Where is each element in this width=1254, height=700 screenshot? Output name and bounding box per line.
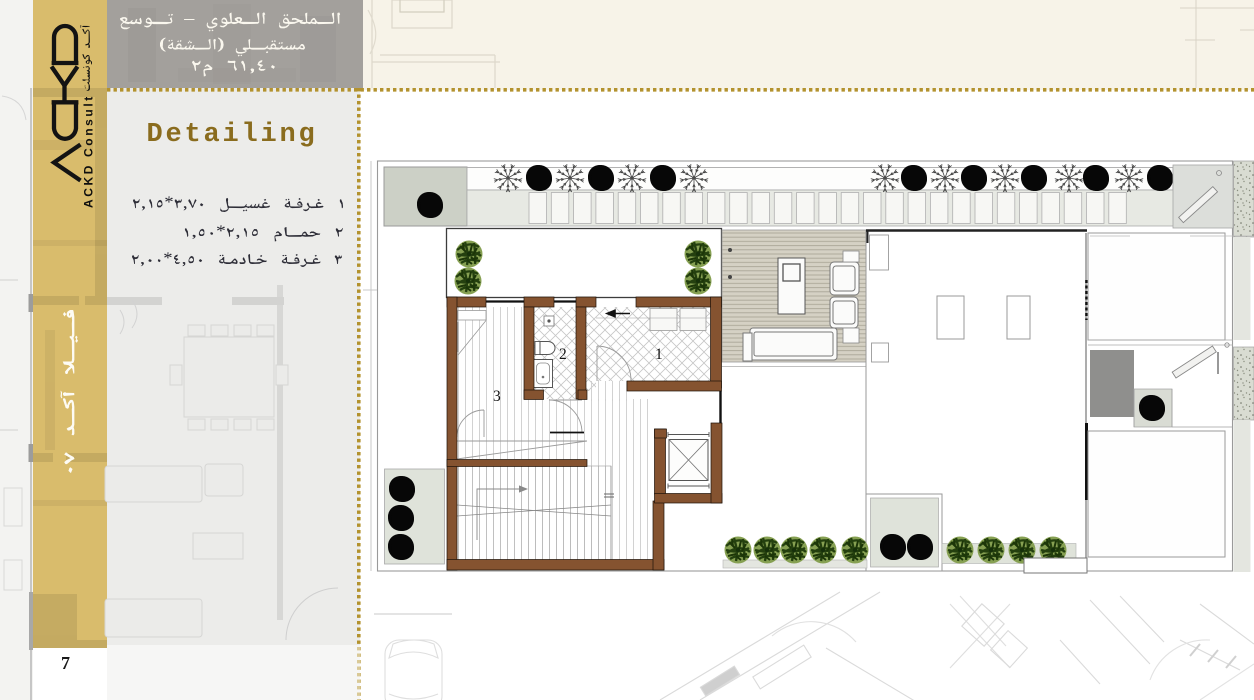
- svg-text:3: 3: [493, 388, 501, 405]
- svg-text:ACKD Consult: ACKD Consult: [82, 94, 96, 208]
- svg-text:1: 1: [655, 346, 663, 363]
- svg-text:2: 2: [559, 346, 567, 363]
- svg-text:Detailing: Detailing: [146, 120, 317, 150]
- svg-text:7: 7: [61, 653, 70, 673]
